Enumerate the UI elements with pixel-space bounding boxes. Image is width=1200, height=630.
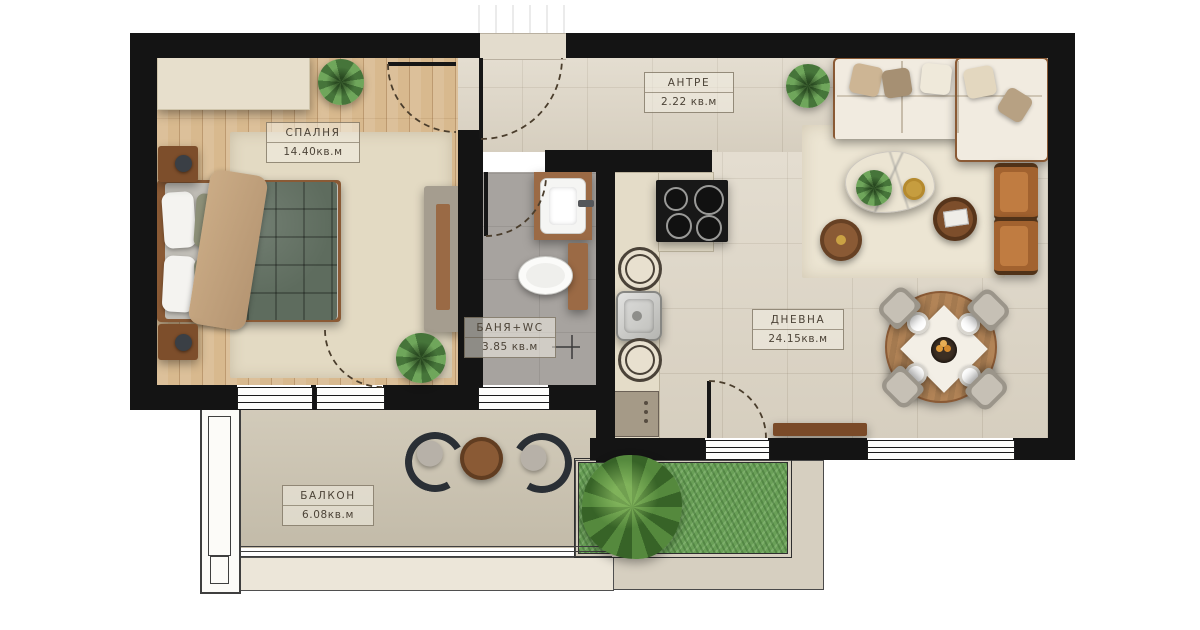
- bath-vanity-counter: [534, 172, 592, 240]
- wall-bathroom-kitchen-divider: [596, 150, 615, 462]
- plant-coffee-table: [856, 170, 892, 206]
- tv-bench: [773, 423, 867, 436]
- room-name-hallway: АНТРЕ: [645, 73, 733, 93]
- wall-left: [130, 33, 157, 410]
- dresser-runner: [436, 204, 450, 310]
- pillow-white-top: [161, 191, 197, 249]
- wall-bottom-living-1: [768, 438, 867, 460]
- side-table-round-2: [933, 197, 977, 241]
- room-name-living: ДНЕВНА: [753, 310, 843, 330]
- toilet-seat: [526, 263, 565, 288]
- bath-faucet: [578, 200, 594, 207]
- sofa-pillow-2: [881, 67, 913, 99]
- nightstand-top: [158, 146, 198, 182]
- fruit-bowl: [931, 337, 957, 363]
- armchair-2: [994, 217, 1038, 275]
- kitchen-appliance-cabinet: [614, 391, 659, 437]
- kitchen-round-fixture-bottom: [618, 338, 662, 382]
- bed: [157, 180, 341, 322]
- balcony-railing-foot: [210, 556, 229, 584]
- side-table-deco: [836, 235, 846, 245]
- sofa-pillow-3: [920, 63, 953, 96]
- wall-bathroom-top-left: [458, 150, 483, 172]
- balcony-table: [460, 437, 503, 480]
- wall-top-left: [130, 33, 480, 58]
- burner-1: [664, 187, 688, 211]
- wall-top-right: [566, 33, 1075, 58]
- room-name-bathroom: БАНЯ+WC: [465, 318, 555, 338]
- plant-bedroom-bottom: [396, 333, 446, 383]
- terrace-bush: [582, 455, 682, 559]
- room-area-living: 24.15кв.м: [753, 330, 843, 349]
- burner-4: [696, 215, 722, 241]
- balcony-railing: [237, 546, 612, 557]
- burner-3: [666, 213, 692, 239]
- floor-plan: СПАЛНЯ 14.40кв.м АНТРЕ 2.22 кв.м БАНЯ+WC…: [0, 0, 1200, 630]
- balcony-outer-apron: [222, 557, 614, 591]
- wardrobe: [157, 55, 310, 110]
- living-window: [867, 440, 1015, 460]
- gold-tray: [903, 178, 925, 200]
- lamp-top: [175, 155, 192, 172]
- toilet-bowl: [518, 256, 573, 295]
- room-label-living: ДНЕВНА 24.15кв.м: [752, 309, 844, 350]
- room-area-bedroom: 14.40кв.м: [267, 143, 359, 162]
- room-area-hallway: 2.22 кв.м: [645, 93, 733, 112]
- sofa-cushion-seam-2: [957, 61, 959, 133]
- kitchen-sink-drain: [632, 311, 642, 321]
- side-table-round: [820, 219, 862, 261]
- books-stack: [943, 208, 969, 227]
- sofa-pillow-4: [962, 64, 997, 99]
- entry-threshold: [480, 33, 566, 60]
- wall-bottom-bedroom-1: [130, 385, 237, 410]
- room-label-bathroom: БАНЯ+WC 3.85 кв.м: [464, 317, 556, 358]
- fruit: [936, 345, 943, 352]
- kitchen-sink: [616, 291, 662, 341]
- balcony-chair-left-cushion: [414, 438, 446, 470]
- bedroom-balcony-door: [316, 387, 385, 410]
- cabinet-handle-dots: [644, 401, 648, 405]
- armchair-1: [994, 163, 1038, 221]
- cooktop: [656, 180, 728, 242]
- room-name-bedroom: СПАЛНЯ: [267, 123, 359, 143]
- wall-bathroom-kitchen-top: [545, 150, 712, 172]
- room-label-bedroom: СПАЛНЯ 14.40кв.м: [266, 122, 360, 163]
- armchair-2-cushion: [1000, 226, 1028, 266]
- lamp-bottom: [175, 334, 192, 351]
- plant-bedroom-top: [318, 59, 364, 105]
- nightstand-bottom: [158, 324, 198, 360]
- wall-bedroom-bathroom: [458, 130, 483, 410]
- bathroom-window: [478, 387, 550, 410]
- burner-2: [694, 185, 724, 215]
- room-label-balcony: БАЛКОН 6.08кв.м: [282, 485, 374, 526]
- bedroom-window: [237, 387, 313, 410]
- room-area-bathroom: 3.85 кв.м: [465, 338, 555, 357]
- balcony-railing-column-inner: [208, 416, 231, 556]
- room-label-hallway: АНТРЕ 2.22 кв.м: [644, 72, 734, 113]
- stairwell-hint: [478, 5, 568, 33]
- armchair-1-cushion: [1000, 172, 1028, 212]
- living-balcony-door-threshold: [705, 440, 770, 460]
- room-area-balcony: 6.08кв.м: [283, 506, 373, 525]
- balcony-chair-right-cushion: [518, 442, 550, 474]
- bath-sink-basin: [549, 187, 577, 225]
- sofa: [833, 57, 1045, 158]
- wall-right: [1048, 33, 1075, 460]
- room-name-balcony: БАЛКОН: [283, 486, 373, 506]
- kitchen-round-fixture-top: [618, 247, 662, 291]
- sofa-pillow-1: [848, 62, 884, 98]
- bedroom-dresser: [424, 186, 462, 332]
- plant-living: [786, 64, 830, 108]
- wall-bottom-living-2: [1013, 438, 1075, 460]
